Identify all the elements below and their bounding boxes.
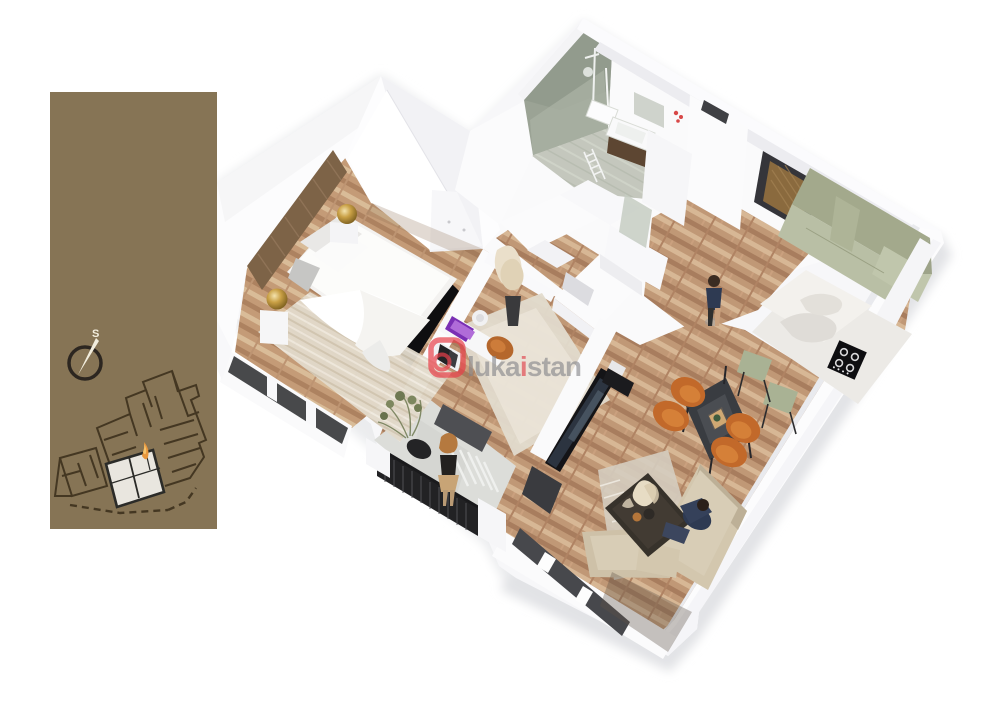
svg-text:lukaistan: lukaistan (467, 351, 581, 382)
svg-text:S: S (92, 328, 99, 340)
